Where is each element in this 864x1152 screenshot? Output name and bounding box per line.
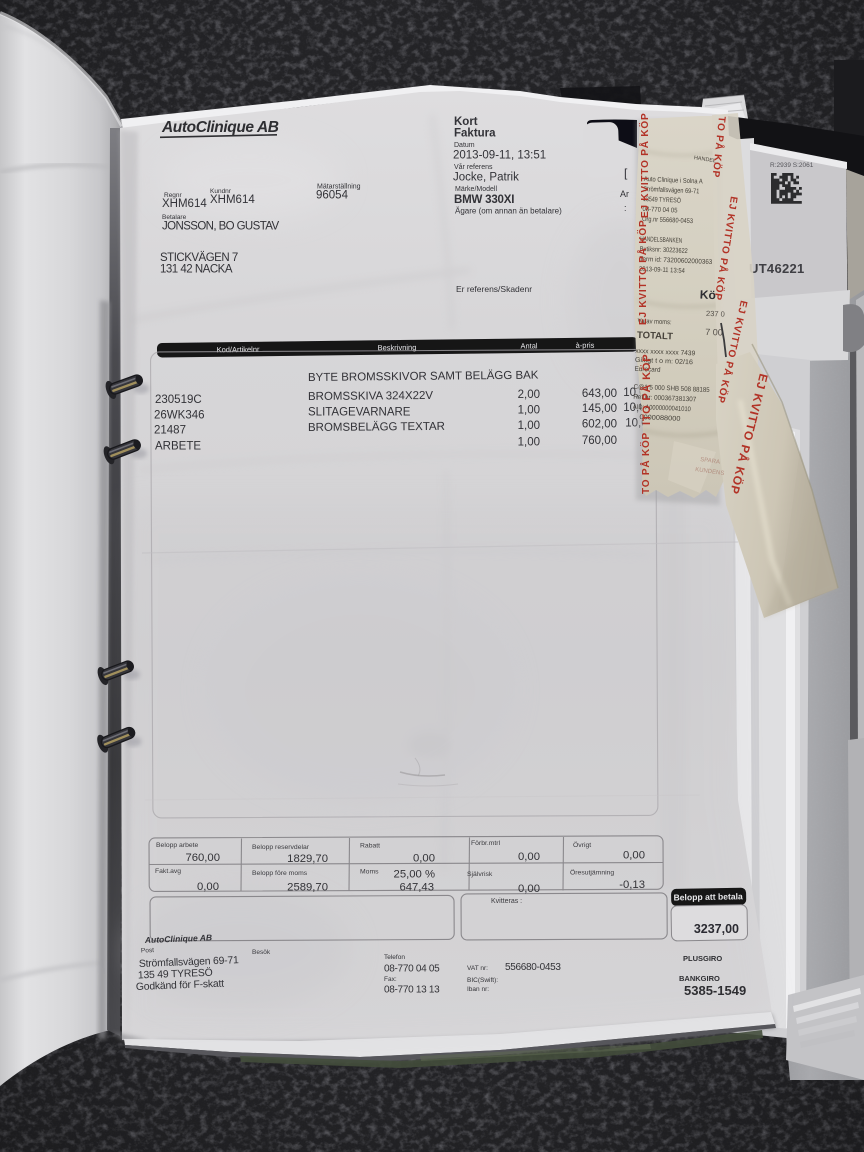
svg-text:BIC(Swift):: BIC(Swift): (467, 977, 498, 984)
svg-text:760,00: 760,00 (185, 852, 220, 864)
svg-text:0,00: 0,00 (623, 850, 645, 862)
svg-text:Öresutjämning: Öresutjämning (570, 869, 614, 877)
svg-text:96054: 96054 (316, 190, 349, 202)
svg-text:0,00: 0,00 (518, 883, 540, 895)
svg-text:SLITAGEVARNARE: SLITAGEVARNARE (308, 407, 411, 419)
svg-text:BMW 330XI: BMW 330XI (454, 194, 514, 206)
svg-text:21487: 21487 (154, 425, 186, 437)
svg-text:Märke/Modell: Märke/Modell (455, 186, 497, 193)
svg-text:AutoClinique AB: AutoClinique AB (161, 119, 279, 136)
svg-text:BYTE BROMSSKIVOR SAMT BELÄGG B: BYTE BROMSSKIVOR SAMT BELÄGG BAK (308, 370, 539, 384)
svg-text:Övrigt: Övrigt (573, 841, 591, 849)
svg-text:XHM614: XHM614 (210, 194, 255, 206)
svg-text:Fakt.avg: Fakt.avg (155, 868, 181, 875)
svg-text:Fax:: Fax: (384, 976, 397, 983)
svg-text:Jocke, Patrik: Jocke, Patrik (453, 172, 519, 184)
svg-text:Datum: Datum (454, 142, 475, 149)
svg-text:5385-1549: 5385-1549 (684, 983, 746, 998)
svg-text:602,00: 602,00 (582, 419, 617, 431)
svg-text:08-770 04 05: 08-770 04 05 (384, 964, 440, 975)
svg-text:Kod/Artikelnr: Kod/Artikelnr (216, 345, 260, 355)
svg-text:Belopp reservdelar: Belopp reservdelar (252, 844, 310, 851)
svg-text:1,00: 1,00 (518, 405, 540, 417)
svg-text::: : (624, 203, 627, 213)
svg-text:à-pris: à-pris (576, 341, 595, 350)
svg-text:Belopp att betala: Belopp att betala (673, 891, 743, 902)
svg-text:BROMSBELÄGG TEXTAR: BROMSBELÄGG TEXTAR (308, 421, 445, 434)
svg-text:TO PÅ KÖP: TO PÅ KÖP (639, 432, 652, 494)
svg-text:1,00: 1,00 (518, 437, 540, 449)
svg-text:Rabatt: Rabatt (360, 843, 380, 850)
svg-text:1829,70: 1829,70 (287, 853, 328, 865)
svg-text:EJ KVITTO PÅ KÖP: EJ KVITTO PÅ KÖP (636, 220, 649, 325)
svg-text:Ägare (om annan än betalare): Ägare (om annan än betalare) (455, 207, 562, 216)
svg-text:0,00: 0,00 (518, 851, 540, 863)
svg-text:BROMSSKIVA 324X22V: BROMSSKIVA 324X22V (308, 390, 434, 403)
svg-text:ITO PÅ KÖP: ITO PÅ KÖP (640, 354, 653, 425)
svg-text:0,00: 0,00 (413, 853, 435, 865)
svg-text:Telefon: Telefon (384, 954, 405, 961)
svg-text:Självrisk: Självrisk (467, 871, 493, 878)
svg-text:145,00: 145,00 (582, 403, 617, 415)
svg-text:Kvitteras :: Kvitteras : (491, 898, 522, 905)
svg-text:VAT nr:: VAT nr: (467, 965, 488, 972)
svg-text:643,00: 643,00 (582, 388, 617, 400)
svg-text:JONSSON, BO GUSTAV: JONSSON, BO GUSTAV (162, 221, 280, 233)
svg-text:Moms: Moms (360, 869, 379, 876)
svg-text:2,00: 2,00 (518, 389, 540, 401)
svg-text:131 42 NACKA: 131 42 NACKA (160, 264, 233, 276)
svg-text:EJ KVITTO PÅ KÖP: EJ KVITTO PÅ KÖP (638, 113, 651, 218)
svg-text:STICKVÄGEN 7: STICKVÄGEN 7 (160, 252, 238, 264)
svg-text:237 0: 237 0 (706, 309, 725, 319)
svg-text:Belopp arbete: Belopp arbete (156, 842, 199, 849)
svg-text:Ar: Ar (620, 189, 629, 199)
svg-text:Iban nr:: Iban nr: (467, 986, 489, 993)
svg-text:PLUSGIRO: PLUSGIRO (683, 954, 722, 963)
svg-text:Förbr.mtrl: Förbr.mtrl (471, 840, 501, 847)
svg-text:Vår referens: Vår referens (454, 163, 493, 171)
svg-text:2589,70: 2589,70 (287, 882, 328, 894)
svg-text:Post: Post (141, 947, 154, 955)
svg-text:230519C: 230519C (155, 394, 202, 406)
svg-text:760,00: 760,00 (582, 435, 617, 447)
svg-text:Antal: Antal (520, 341, 538, 350)
svg-text:TOTALT: TOTALT (637, 330, 674, 343)
svg-text:Besök: Besök (252, 949, 271, 956)
svg-text:ARBETE: ARBETE (155, 441, 201, 453)
svg-text:R:2939 S:2061: R:2939 S:2061 (770, 162, 814, 169)
svg-text:XHM614: XHM614 (162, 198, 207, 210)
svg-text:0,00: 0,00 (197, 881, 219, 893)
svg-text:2013-09-11, 13:51: 2013-09-11, 13:51 (453, 150, 546, 162)
svg-text:25,00 %: 25,00 % (394, 869, 435, 881)
svg-text:08-770 13 13: 08-770 13 13 (384, 985, 440, 996)
svg-text:UT46221: UT46221 (749, 261, 805, 276)
svg-text:26WK346: 26WK346 (154, 410, 205, 422)
svg-text:Kort: Kort (454, 116, 478, 128)
svg-text:556680-0453: 556680-0453 (505, 962, 561, 973)
svg-text:Faktura: Faktura (454, 128, 496, 140)
svg-text:1,00: 1,00 (518, 420, 540, 432)
svg-text:-0,13: -0,13 (619, 879, 645, 891)
svg-text:647,43: 647,43 (399, 882, 434, 894)
svg-text:7 00: 7 00 (705, 327, 723, 338)
svg-text:Belopp före moms: Belopp före moms (252, 870, 308, 877)
svg-text:3237,00: 3237,00 (694, 922, 739, 936)
svg-text:BANKGIRO: BANKGIRO (679, 974, 720, 983)
svg-text:Er referens/Skadenr: Er referens/Skadenr (456, 284, 532, 294)
